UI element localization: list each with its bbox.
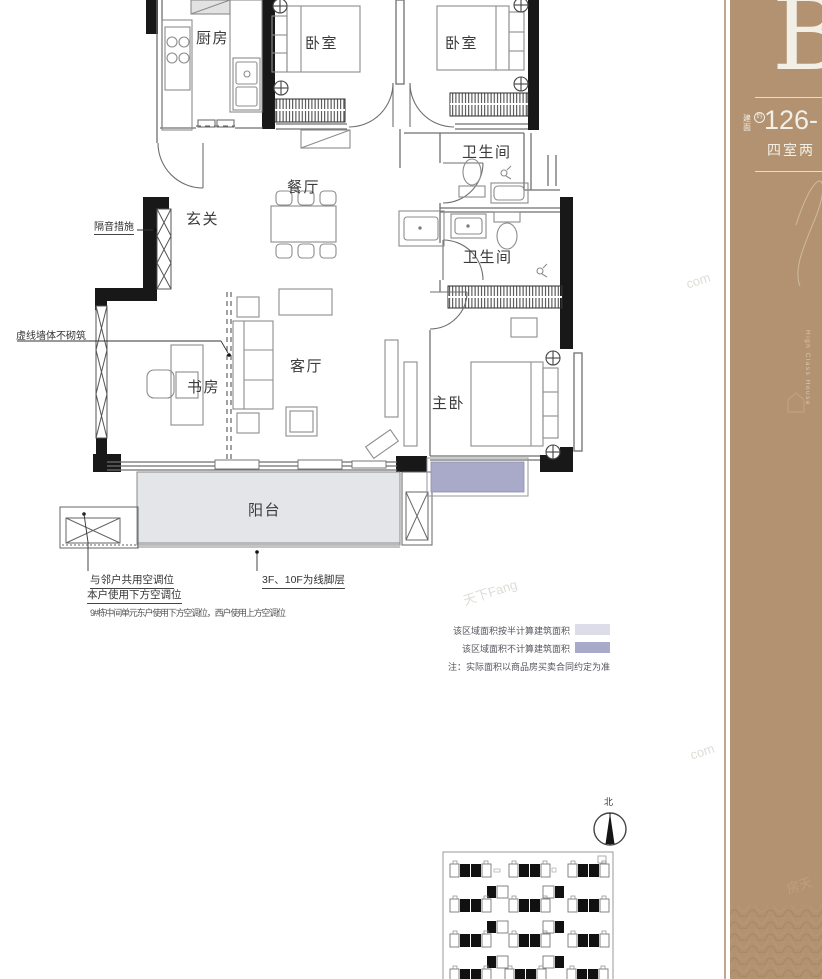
room-label-bedroom1: 卧室 [305,32,338,53]
room-label-bath1: 卫生间 [462,141,512,162]
balcony-sliders [215,460,386,469]
annotation-ac-note: 9#栋中间单元东户使用下方空调位，西户使用上方空调位 [90,606,285,619]
legend-excluded-label: 该区域面积不计算建筑面积 [452,642,570,655]
legend-half-label: 该区域面积按半计算建筑面积 [452,624,570,637]
annotation-dashed-wall: 虚线墙体不砌筑 [16,327,86,342]
sidebar-panel: B 建面 约 126- 四室两 High Class House 房天 [730,0,822,979]
master-furniture [385,318,560,459]
sidebar-edge-line [724,0,726,979]
room-label-master: 主卧 [432,392,465,413]
room-label-study: 书房 [187,376,220,397]
sidebar-wave-pattern [730,905,822,979]
room-label-bedroom2: 卧室 [445,32,478,53]
room-label-entry: 玄关 [186,208,219,229]
annotation-ac-lower: 本户使用下方空调位 [87,587,182,604]
floorplan-page: 厨房 卧室 卧室 卫生间 餐厅 玄关 卫生间 书房 客厅 主卧 阳台 隔音措施 … [0,0,822,979]
room-label-balcony: 阳台 [248,499,281,520]
room-label-kitchen: 厨房 [196,27,229,48]
room-label-dining: 餐厅 [287,176,320,197]
floorplan-drawing [0,0,822,979]
compass-north-label: 北 [604,795,613,808]
legend-half-swatch [575,624,610,635]
room-label-living: 客厅 [290,355,323,376]
room-label-bath2: 卫生间 [463,246,513,267]
ac-platform-left [60,507,138,548]
legend-note: 注：实际面积以商品房买卖合同约定为准 [448,660,610,673]
annotation-soundproof: 隔音措施 [94,218,134,235]
sidebar-flourish [730,0,822,500]
shaft-columns [96,209,171,438]
annotation-molding: 3F、10F为线脚层 [262,572,345,589]
excluded-area-purple [427,458,528,496]
dining-furniture [271,191,336,258]
legend-excluded-swatch [575,642,610,653]
kitchen-fixtures [162,0,262,130]
site-plan [443,852,613,979]
bathroom1-fixtures [459,159,528,203]
compass [594,813,626,845]
sidebar-tagline: High Class House [804,330,811,406]
watermark: 房天 [784,871,815,897]
